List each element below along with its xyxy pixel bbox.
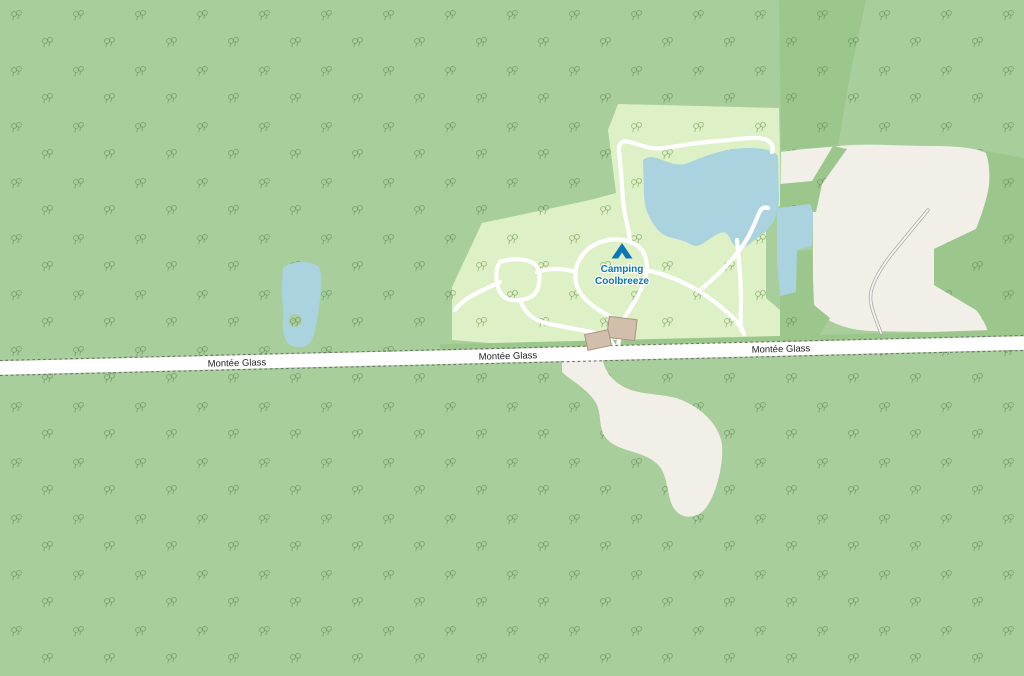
large-lake [643,148,779,248]
poi-label-line2: Coolbreeze [595,276,649,287]
road-label-right: Montée Glass [752,343,811,355]
road-label-center: Montée Glass [479,350,538,362]
map-svg: Montée Glass Montée Glass Montée Glass C… [0,0,1024,676]
poi-label-line1: Camping [601,264,644,275]
road-label-left: Montée Glass [208,357,267,369]
map-canvas[interactable]: Montée Glass Montée Glass Montée Glass C… [0,0,1024,676]
building-1 [607,316,637,340]
